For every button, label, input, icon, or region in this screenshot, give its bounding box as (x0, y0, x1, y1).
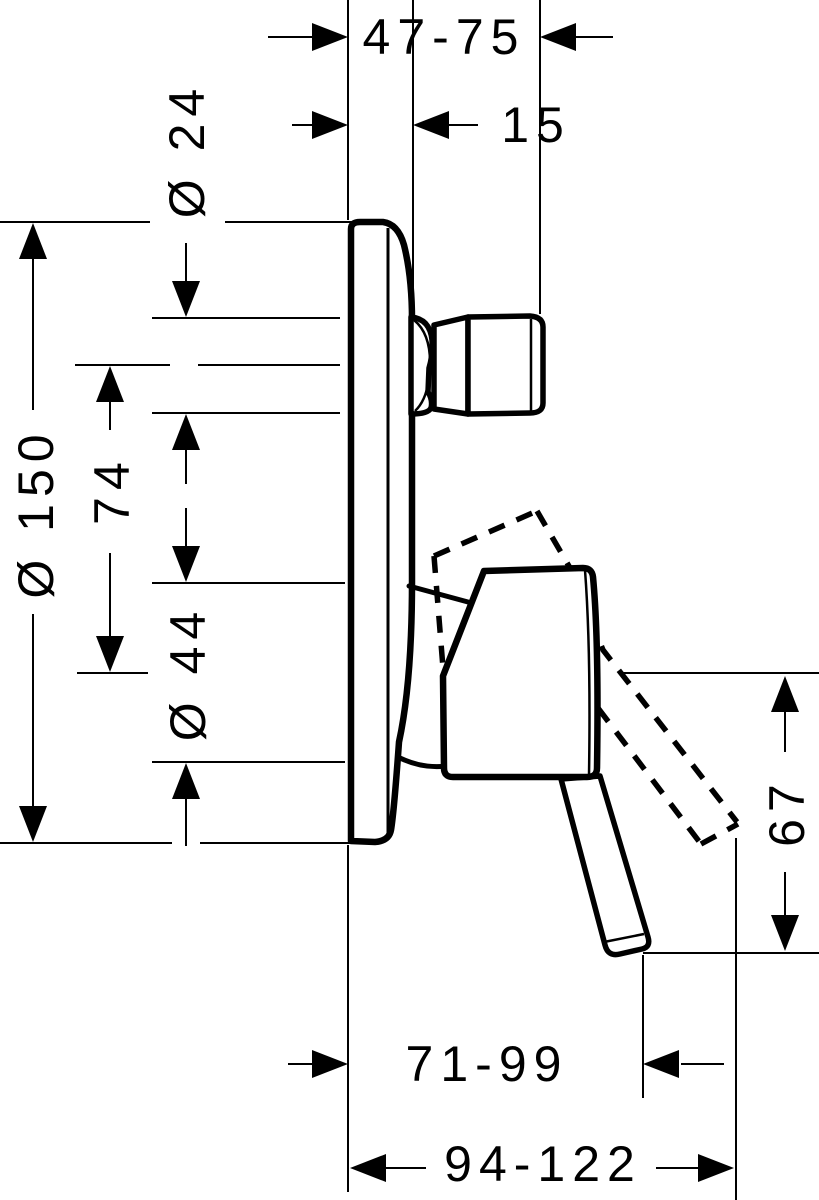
arrowhead-right-icon (312, 1050, 348, 1078)
arrowhead-right-icon (312, 23, 348, 51)
dim-wall-depth-range-label: 47-75 (363, 9, 526, 65)
dim-knob-diameter-label: Ø 24 (159, 82, 215, 218)
lever-arm (561, 776, 649, 955)
dim-sleeve-diameter-label: Ø 44 (160, 605, 216, 741)
technical-drawing-canvas: 47-75 15 Ø 24 Ø 150 74 Ø 44 67 71-99 94-… (0, 0, 819, 1200)
dimension-drawing: 47-75 15 Ø 24 Ø 150 74 Ø 44 67 71-99 94-… (0, 0, 819, 1200)
dashed-handle-left-edge (434, 556, 443, 668)
arrowhead-up-icon (172, 414, 200, 450)
handle-sleeve-bottom-edge (400, 758, 447, 767)
arrowhead-up-icon (19, 223, 47, 259)
arrowhead-right-icon (312, 111, 348, 139)
arrowhead-left-icon (350, 1154, 386, 1182)
dim-lever-drop-label: 67 (759, 777, 815, 847)
wall-plate (351, 222, 412, 842)
arrowhead-up-icon (96, 366, 124, 402)
dim-spout-to-lever-label: 74 (84, 455, 140, 525)
arrowhead-left-icon (540, 23, 576, 51)
dashed-lever-tip (701, 824, 738, 844)
arrowhead-down-icon (771, 915, 799, 951)
dim-plate-depth-label: 15 (501, 97, 571, 153)
spout-ring (434, 317, 468, 414)
arrowhead-down-icon (172, 546, 200, 582)
arrowhead-down-icon (19, 806, 47, 842)
mixer-side-view (351, 222, 738, 955)
arrowhead-up-icon (771, 676, 799, 712)
arrowhead-up-icon (172, 763, 200, 799)
dim-lever-reach-min-label: 71-99 (406, 1036, 569, 1092)
dim-lever-reach-max-label: 94-122 (444, 1136, 642, 1192)
arrowhead-down-icon (172, 281, 200, 317)
arrowhead-left-icon (643, 1050, 679, 1078)
arrowhead-down-icon (96, 636, 124, 672)
arrowhead-right-icon (698, 1154, 734, 1182)
dim-plate-diameter-label: Ø 150 (8, 427, 64, 598)
arrowhead-left-icon (413, 111, 449, 139)
dashed-handle-top-edge (434, 511, 537, 556)
